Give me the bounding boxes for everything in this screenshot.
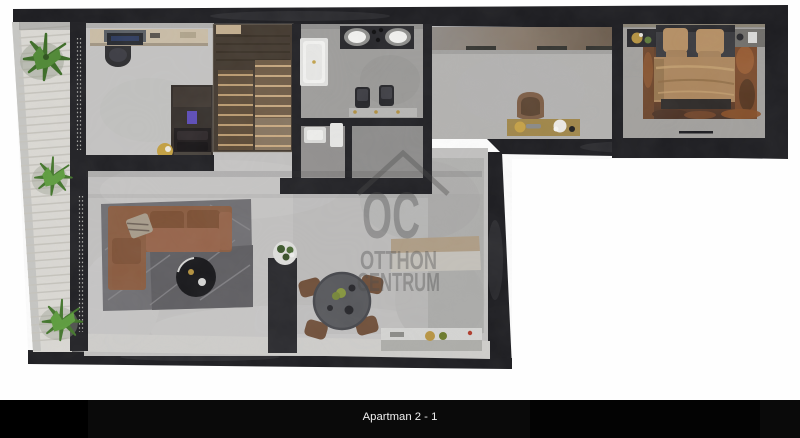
- svg-text:Apartman 2 - 1: Apartman 2 - 1: [363, 411, 438, 423]
